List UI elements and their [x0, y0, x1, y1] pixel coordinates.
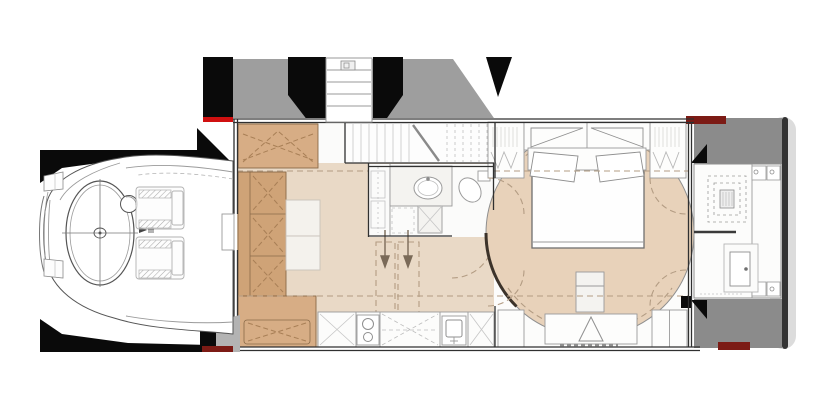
storage-bench: [238, 296, 316, 347]
wardrobe-right: [650, 122, 686, 178]
faucet-icon: [426, 177, 430, 181]
stove: [357, 315, 379, 345]
interior-staircase: [345, 123, 494, 163]
rear-room: [694, 164, 781, 298]
red-accent-left: [203, 117, 233, 122]
floorplan-canvas: [0, 0, 828, 411]
double-bed: [528, 148, 646, 248]
sofa: [238, 172, 286, 296]
driver-seat: [136, 187, 184, 229]
rear-wall-bar: [782, 117, 788, 349]
overhead-cabinet: [238, 124, 318, 168]
lounge: [238, 124, 320, 347]
door-handle-icon: [744, 267, 748, 271]
cab-doorway: [222, 214, 234, 250]
bathroom: [368, 164, 494, 237]
kitchen-sink: [442, 316, 466, 345]
foot-bench: [576, 272, 604, 312]
steering-wheel-icon: [121, 196, 138, 213]
truck-cab: [40, 128, 241, 352]
tv-cabinet: [545, 314, 637, 345]
step-sensor-icon: [341, 61, 355, 70]
shower: [418, 206, 442, 233]
passenger-seat: [136, 237, 184, 279]
kitchen-counter: [318, 312, 494, 347]
bedroom-cabinet-right: [652, 310, 687, 347]
maroon-accent-cab: [202, 346, 233, 352]
entry-steps: [326, 58, 372, 122]
maroon-accent-bottom: [718, 342, 750, 350]
rear-door: [724, 244, 758, 292]
headboard-cabinet: [524, 122, 650, 150]
bedroom-cabinet-left: [498, 310, 524, 347]
dinette-table: [286, 200, 320, 270]
rear-section: [681, 116, 796, 350]
bedroom: [486, 122, 694, 347]
floorplan-drawing: [0, 0, 828, 411]
